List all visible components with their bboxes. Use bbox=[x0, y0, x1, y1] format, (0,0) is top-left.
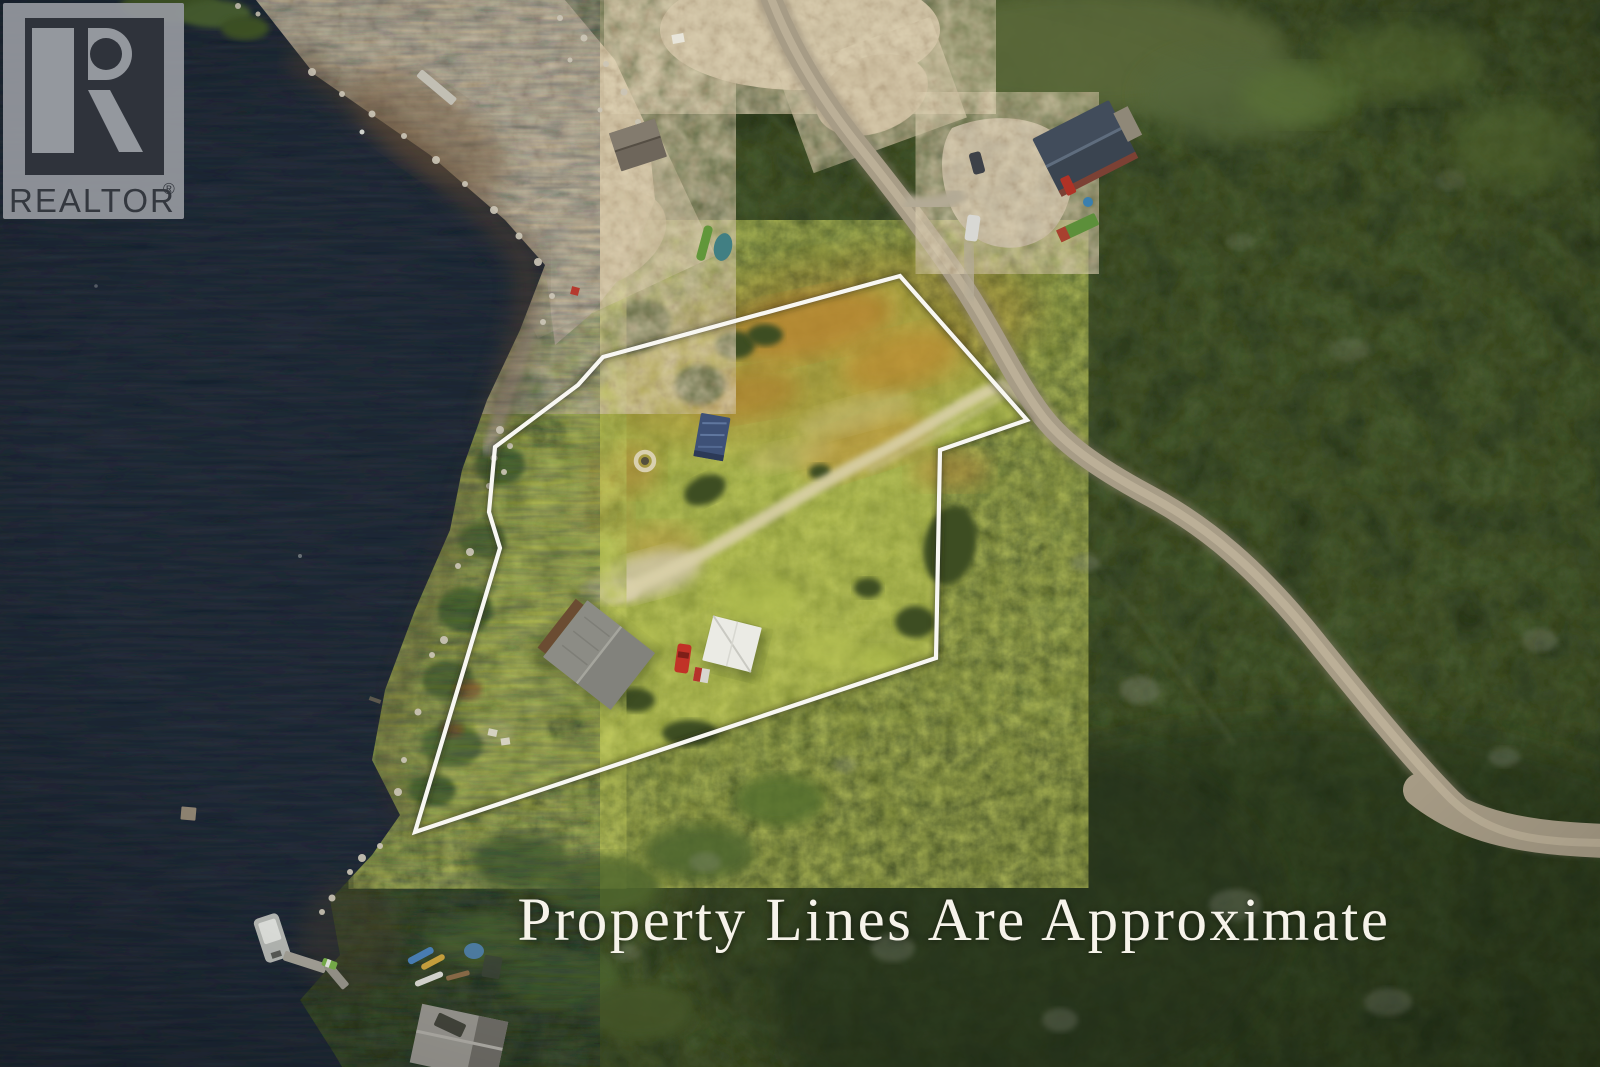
realtor-wordmark: REALTOR bbox=[9, 182, 176, 219]
registered-trademark-symbol: ® bbox=[163, 181, 175, 198]
aerial-photo: REALTOR ® Property Lines Are Approximate bbox=[0, 0, 1600, 1067]
realtor-block-r-logo: REALTOR ® bbox=[3, 3, 193, 231]
realtor-watermark: REALTOR ® bbox=[3, 3, 193, 231]
property-lines-caption: Property Lines Are Approximate bbox=[518, 886, 1391, 956]
